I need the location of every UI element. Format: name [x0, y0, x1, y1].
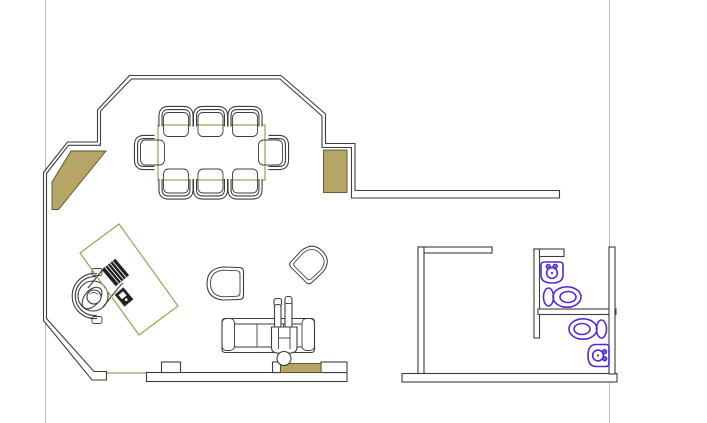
restroom-partition-horizontal	[538, 309, 616, 315]
sofa-arm-left	[222, 319, 235, 351]
conference-chair-bottom-2[interactable]	[195, 169, 226, 198]
sofa[interactable]	[222, 319, 315, 353]
bottom-wall-bar	[147, 373, 348, 382]
page-guides	[46, 0, 610, 423]
person-leg-left	[275, 305, 282, 328]
sink-top[interactable]	[541, 262, 563, 283]
conference-chair-top-2[interactable]	[195, 108, 226, 137]
desk-phone[interactable]	[115, 288, 133, 307]
person-head	[277, 352, 291, 366]
sink-bottom[interactable]	[588, 345, 609, 367]
side-room-bottom-wall	[402, 374, 617, 383]
conference-chair-right[interactable]	[259, 137, 288, 168]
angled-door-panel[interactable]	[52, 151, 106, 210]
toilet-bottom[interactable]	[569, 319, 607, 339]
conference-set[interactable]	[136, 108, 287, 198]
conference-chair-left[interactable]	[136, 137, 165, 168]
desk-set[interactable]	[74, 224, 178, 335]
conference-table[interactable]	[158, 125, 265, 180]
person-leg-right	[285, 297, 292, 328]
keyboard[interactable]	[102, 259, 129, 286]
lounge-chair-left[interactable]	[207, 267, 244, 300]
conference-chair-bottom-3[interactable]	[230, 169, 261, 198]
sofa-arm-right	[302, 319, 315, 351]
right-door-panel[interactable]	[324, 150, 348, 193]
side-room-top-wall	[418, 247, 492, 253]
lounge-chairs[interactable]	[207, 240, 333, 300]
toilet-top[interactable]	[544, 287, 582, 307]
conference-chair-bottom-1[interactable]	[161, 169, 192, 198]
floor-plan-drawing[interactable]	[0, 0, 707, 423]
restroom-partition-vertical	[534, 249, 540, 338]
restroom-right-wall	[609, 247, 615, 374]
bottom-wall[interactable]	[107, 362, 347, 382]
wall-column	[162, 362, 181, 373]
person-on-sofa[interactable]	[272, 297, 298, 366]
floor-plan-canvas[interactable]	[0, 0, 707, 423]
side-room-left-wall	[418, 247, 424, 374]
conference-chair-top-3[interactable]	[230, 108, 261, 137]
main-wall-outline	[44, 76, 560, 381]
conference-chair-top-1[interactable]	[161, 108, 192, 137]
person-torso	[272, 327, 298, 353]
door-jamb-right	[321, 362, 347, 373]
lounge-chair-right[interactable]	[288, 240, 333, 285]
main-room-walls[interactable]	[44, 76, 560, 381]
